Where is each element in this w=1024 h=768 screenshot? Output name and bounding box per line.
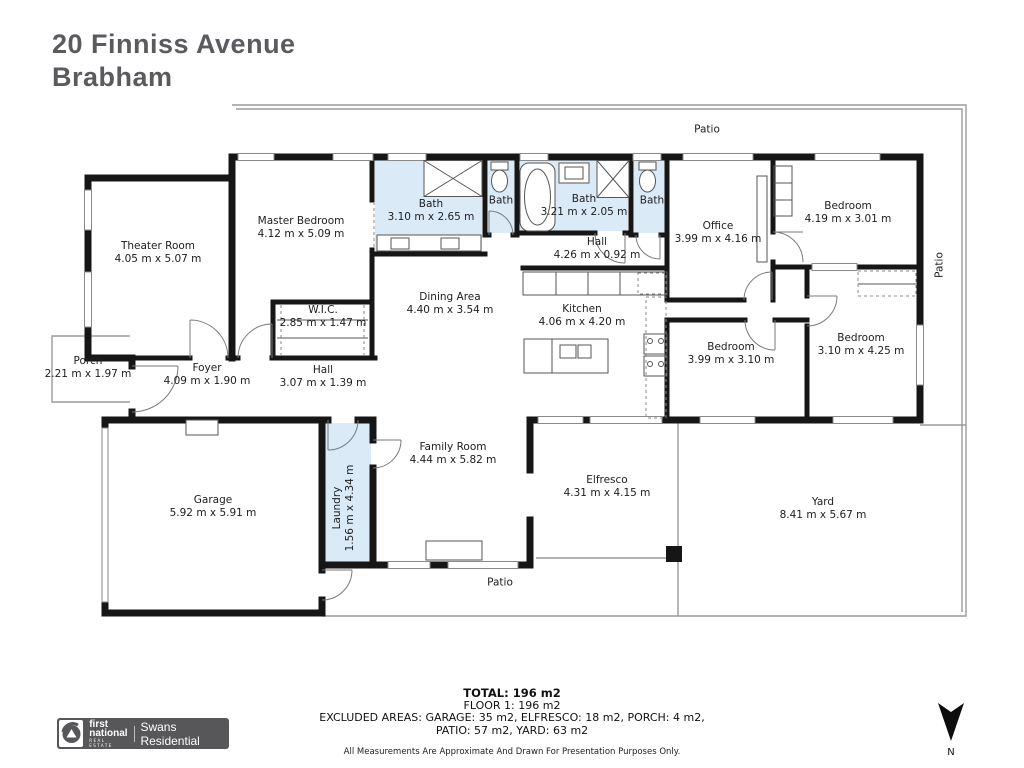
room-label-family-room: Family Room4.44 m x 5.82 m: [410, 441, 497, 467]
room-label-foyer: Foyer4.09 m x 1.90 m: [164, 362, 251, 388]
office-shelf: [757, 176, 767, 262]
room-label-patio-bottom: Patio: [487, 577, 513, 590]
room-label-garage: Garage5.92 m x 5.91 m: [170, 494, 257, 520]
brand-text: first national REAL ESTATE: [89, 720, 127, 748]
room-label-bedroom-2: Bedroom4.19 m x 3.01 m: [805, 200, 892, 226]
room-label-bedroom-3: Bedroom3.99 m x 3.10 m: [688, 341, 775, 367]
room-label-laundry: Laundry1.56 m x 4.34 m: [331, 465, 357, 552]
toilet-wc2: [639, 162, 656, 170]
oven: [644, 334, 667, 354]
room-label-theater-room: Theater Room4.05 m x 5.07 m: [115, 240, 202, 266]
room-label-bedroom-4: Bedroom3.10 m x 4.25 m: [818, 332, 905, 358]
cooktop: [644, 356, 667, 376]
floorplan-page: 20 Finniss Avenue Brabham: [0, 0, 1024, 768]
floor-plan: Theater Room4.05 m x 5.07 m Master Bedro…: [0, 0, 1024, 768]
room-label-hall-upper: Hall4.26 m x 0.92 m: [554, 236, 641, 262]
floor-plan-drawing: [0, 0, 1024, 768]
toilet-wc1: [491, 162, 508, 170]
vanity-main: [559, 163, 589, 183]
family-tv-unit: [426, 541, 482, 560]
room-label-bath-wc2: Bath: [640, 195, 664, 208]
room-label-office: Office3.99 m x 4.16 m: [675, 220, 762, 246]
garage-store: [186, 420, 218, 435]
total-area: TOTAL: 196 m2: [0, 687, 1024, 700]
first-national-emblem-icon: [59, 720, 83, 747]
room-label-patio-top: Patio: [694, 124, 720, 137]
garage-door: [102, 428, 108, 602]
room-label-patio-right: Patio: [934, 252, 947, 278]
compass-label: N: [934, 747, 968, 758]
garage-patio-door: [322, 570, 352, 600]
elfresco-post: [666, 546, 682, 562]
room-label-bath-main: Bath3.21 m x 2.05 m: [541, 193, 628, 219]
room-label-kitchen: Kitchen4.06 m x 4.20 m: [539, 303, 626, 329]
north-arrow-icon: [936, 702, 966, 742]
room-label-porch: Porch2.21 m x 1.97 m: [45, 355, 132, 381]
room-label-wic: W.I.C.2.85 m x 1.47 m: [280, 304, 367, 330]
agency-logo: first national REAL ESTATE Swans Residen…: [57, 718, 229, 749]
north-compass: N: [934, 702, 968, 758]
room-label-hall-lower: Hall3.07 m x 1.39 m: [280, 364, 367, 390]
doors: [132, 211, 837, 600]
room-label-bath-wc1: Bath: [489, 195, 513, 208]
room-label-elfresco: Elfresco4.31 m x 4.15 m: [564, 474, 651, 500]
kitchen-counter: [523, 272, 667, 295]
room-label-bath-ensuite: Bath3.10 m x 2.65 m: [388, 198, 475, 224]
brand-line2: national: [89, 729, 127, 738]
brand-subtext: REAL ESTATE: [89, 738, 127, 748]
robe-bedroom-2: [774, 166, 792, 216]
room-label-yard: Yard8.41 m x 5.67 m: [780, 496, 867, 522]
room-label-master-bedroom: Master Bedroom4.12 m x 5.09 m: [258, 215, 345, 241]
logo-separator: [134, 726, 135, 742]
kitchen-island: [524, 339, 608, 373]
room-label-dining-area: Dining Area4.40 m x 3.54 m: [407, 291, 494, 317]
agency-name: Swans Residential: [140, 720, 229, 748]
